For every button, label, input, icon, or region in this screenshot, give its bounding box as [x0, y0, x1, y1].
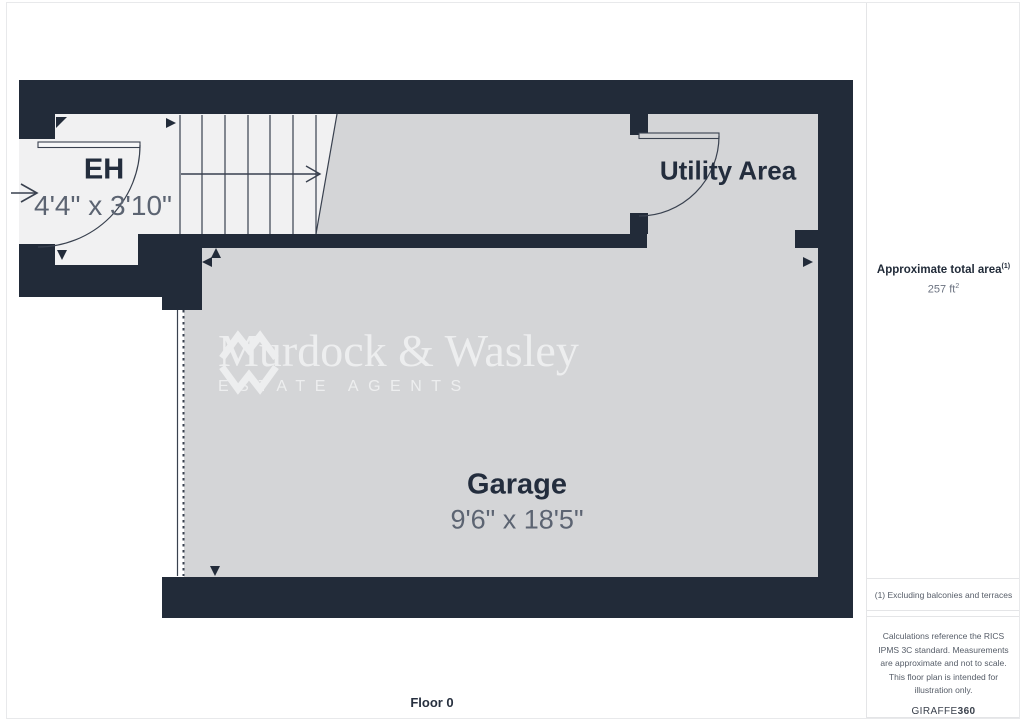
- disclaimer-box: Calculations reference the RICS IPMS 3C …: [867, 616, 1020, 718]
- disclaimer-text: Calculations reference the RICS IPMS 3C …: [878, 630, 1010, 698]
- room-dims-eh: 4'4" x 3'10": [34, 190, 172, 222]
- floorplan-page: Murdock & Wasley ESTATE AGENTS EH 4'4" x…: [0, 0, 1024, 724]
- wall-corner-marker-icon: [210, 566, 220, 576]
- footnote-text: (1) Excluding balconies and terraces: [875, 590, 1013, 600]
- wall-corner-marker-icon: [57, 250, 67, 260]
- footnote-box: (1) Excluding balconies and terraces: [867, 578, 1020, 611]
- wall-corner-marker-icon: [56, 117, 67, 128]
- garage-door-opening: [178, 310, 184, 576]
- room-dims-garage: 9'6" x 18'5": [450, 505, 583, 536]
- giraffe360-brand: GIRAFFE360: [867, 706, 1020, 717]
- total-area-value: 257 ft2: [867, 283, 1020, 296]
- room-label-eh: EH: [84, 154, 124, 187]
- sidebar-divider: [866, 2, 867, 719]
- total-area-title: Approximate total area(1): [867, 263, 1020, 276]
- mw-monogram-icon: [218, 327, 280, 399]
- agency-watermark: Murdock & Wasley ESTATE AGENTS: [218, 327, 579, 396]
- room-label-garage: Garage: [467, 469, 567, 502]
- area-footnote-ref: (1): [1002, 263, 1011, 270]
- total-area-block: Approximate total area(1) 257 ft2: [867, 263, 1020, 295]
- room-label-utility: Utility Area: [660, 156, 796, 187]
- wall-corner-marker-icon: [211, 248, 221, 258]
- wall-corner-marker-icon: [202, 257, 212, 267]
- wall-corner-marker-icon: [166, 118, 176, 128]
- wall-corner-marker-icon: [803, 257, 813, 267]
- floor-label: Floor 0: [366, 695, 498, 710]
